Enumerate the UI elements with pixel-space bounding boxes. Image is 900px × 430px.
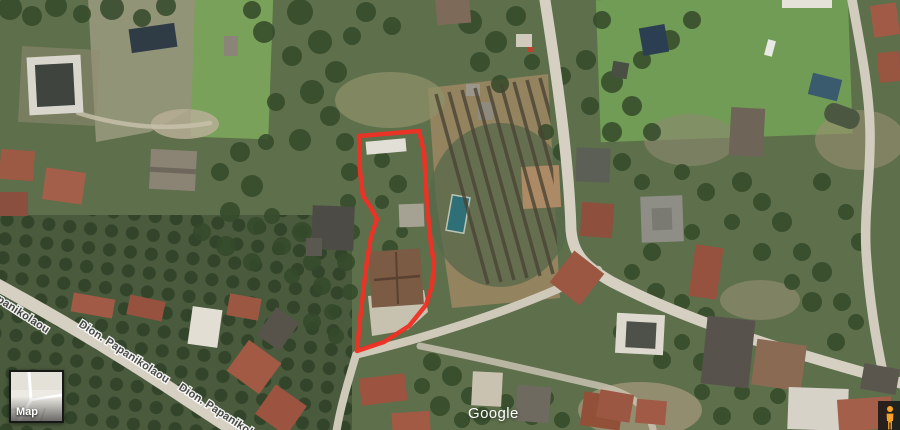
google-watermark[interactable]: Google xyxy=(468,405,519,422)
pegman-icon xyxy=(882,405,898,430)
pegman-button[interactable] xyxy=(878,401,900,430)
satellite-map-view[interactable]: Dion. Papanikolaou Dion. Papanikolaou Di… xyxy=(0,0,900,430)
map-canvas[interactable]: Dion. Papanikolaou Dion. Papanikolaou Di… xyxy=(0,0,900,430)
map-type-toggle-button[interactable]: Map xyxy=(9,370,64,423)
map-toggle-label: Map xyxy=(16,406,38,418)
